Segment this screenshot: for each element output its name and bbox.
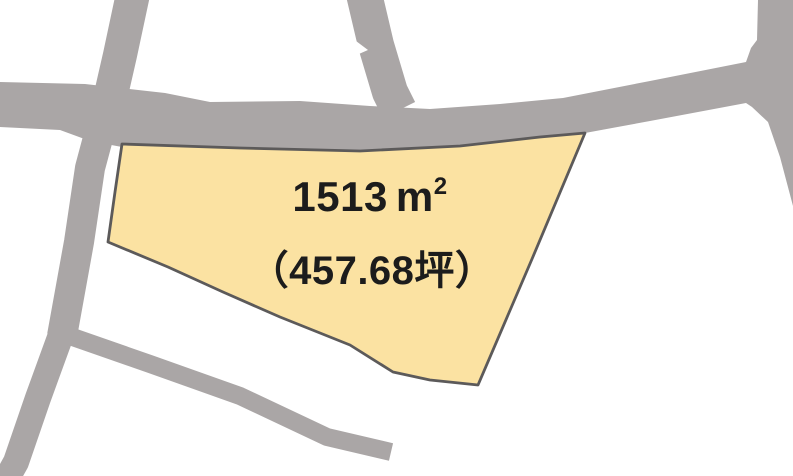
area-unit: m (396, 173, 434, 220)
land-plot-map: 1513m2 （457.68坪） (0, 0, 793, 476)
area-exponent: 2 (434, 173, 448, 200)
area-value: 1513 (292, 173, 387, 220)
parcel-tsubo-label: （457.68坪） (249, 249, 496, 293)
parcel-area-label: 1513m2 (292, 173, 447, 220)
plot-map-svg: 1513m2 （457.68坪） (0, 0, 793, 476)
road-top-left (112, 0, 133, 90)
